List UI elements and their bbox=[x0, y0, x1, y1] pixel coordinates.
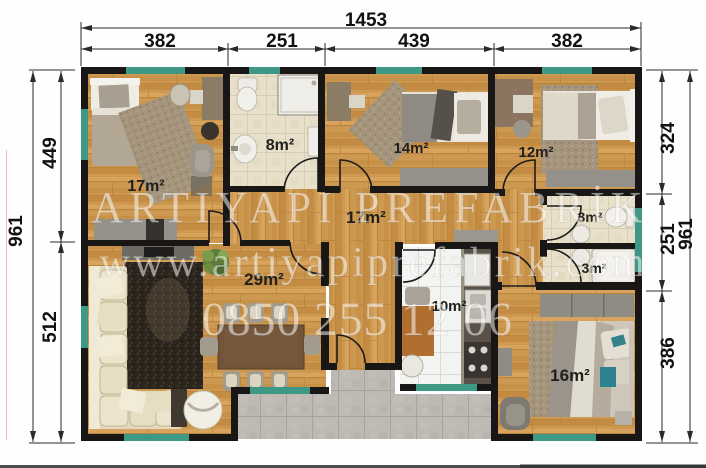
svg-text:251: 251 bbox=[266, 31, 298, 52]
svg-text:439: 439 bbox=[398, 31, 430, 52]
svg-text:8m²: 8m² bbox=[266, 137, 294, 154]
svg-text:449: 449 bbox=[40, 137, 61, 169]
svg-text:0850 255 12 06: 0850 255 12 06 bbox=[202, 293, 512, 346]
svg-text:382: 382 bbox=[551, 31, 583, 52]
svg-text:512: 512 bbox=[40, 311, 61, 343]
svg-text:324: 324 bbox=[658, 122, 679, 154]
svg-text:961: 961 bbox=[676, 218, 697, 250]
svg-text:14m²: 14m² bbox=[393, 140, 428, 157]
svg-text:16m²: 16m² bbox=[550, 366, 590, 385]
svg-text:382: 382 bbox=[144, 31, 176, 52]
svg-text:12m²: 12m² bbox=[518, 144, 553, 161]
svg-text:ARTIYAPI PREFABRİK: ARTIYAPI PREFABRİK bbox=[92, 183, 645, 232]
svg-text:29m²: 29m² bbox=[244, 270, 284, 289]
svg-text:961: 961 bbox=[6, 215, 27, 247]
svg-text:386: 386 bbox=[658, 337, 679, 369]
svg-text:1453: 1453 bbox=[345, 10, 387, 31]
